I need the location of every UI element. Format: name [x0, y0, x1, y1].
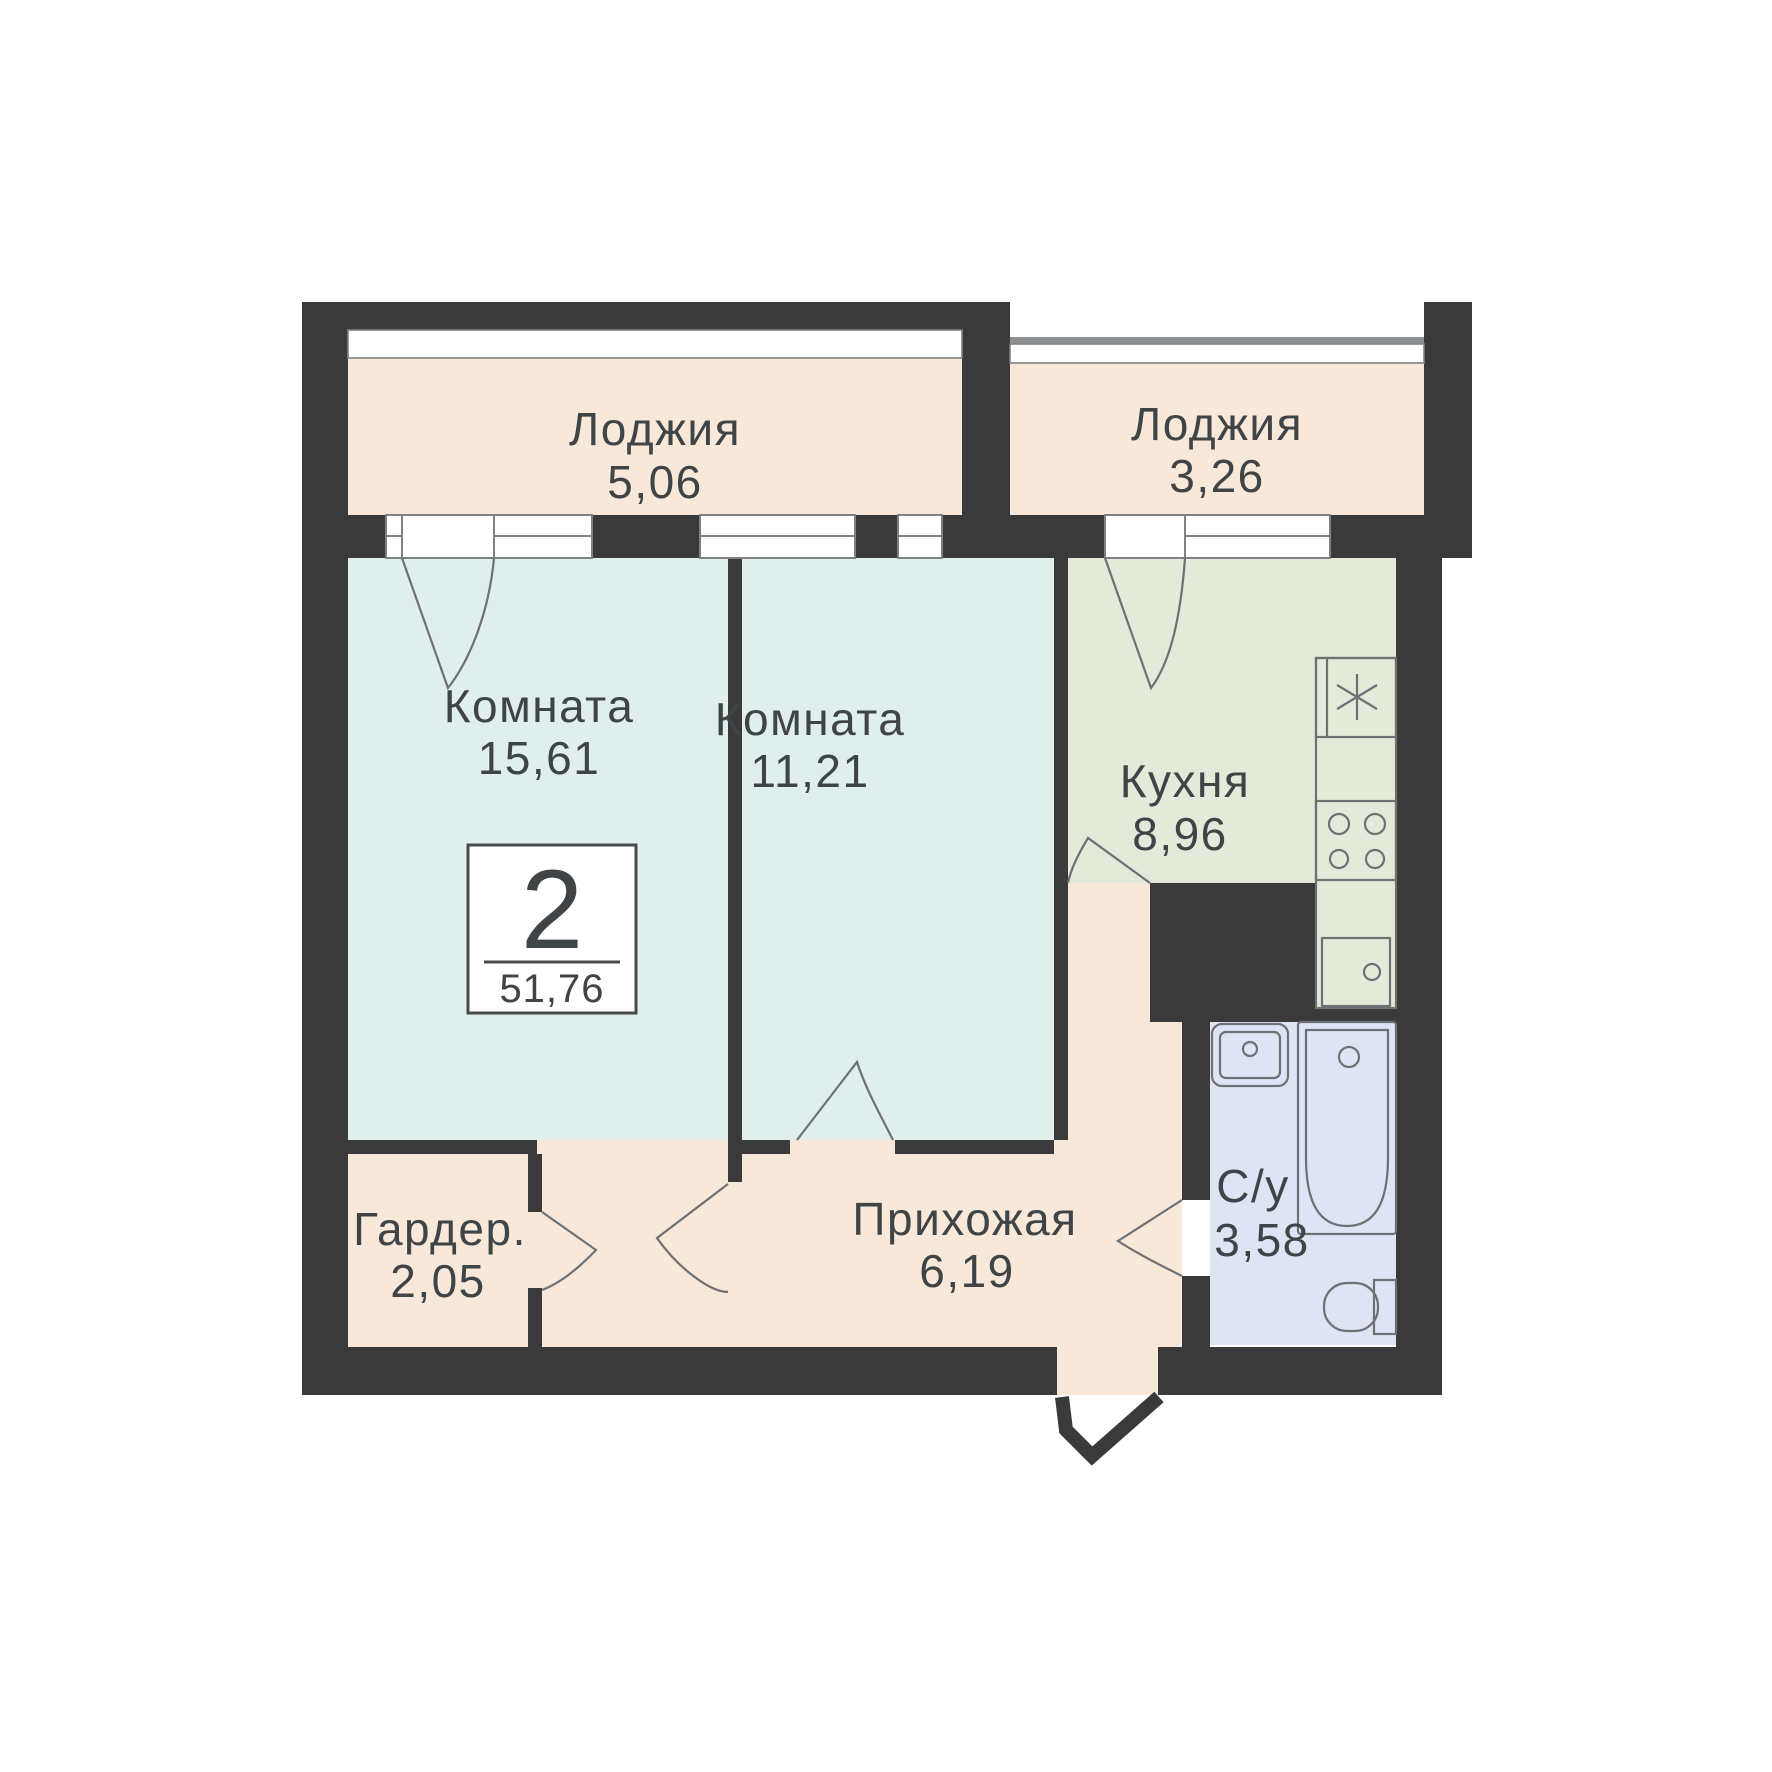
hall-arm-upper-floor — [1068, 883, 1150, 1022]
wall-bottom-left — [302, 1347, 1057, 1395]
loggia2-label: Лоджия — [1131, 398, 1303, 450]
hall-arm-lower-floor — [1068, 1022, 1182, 1140]
entrance-floor — [1057, 1347, 1158, 1395]
wall-right — [1396, 558, 1442, 1395]
balcony-door-kitchen-opening — [1105, 515, 1185, 558]
wall-bath-top — [1316, 1008, 1396, 1022]
wall-wardrobe-right-upper — [528, 1154, 542, 1212]
balcony-door1-opening — [402, 515, 494, 558]
room2-label: Комната — [715, 693, 906, 745]
floor-plan: 2 51,76 Лоджия 5,06 Лоджия 3,26 Комната … — [0, 0, 1772, 1772]
loggia1-area: 5,06 — [607, 456, 703, 508]
wall-kitchen-bath-chunk — [1150, 883, 1316, 1022]
wall-bath-left-upper — [1182, 1022, 1210, 1200]
room2-floor — [742, 558, 1054, 1140]
wall-room2-kitchen — [1054, 558, 1068, 1140]
wall-room2-bottom-right — [895, 1140, 1054, 1154]
room1-area: 15,61 — [478, 732, 601, 784]
total-area: 51,76 — [499, 967, 604, 1011]
bathroom-label: С/у — [1216, 1160, 1290, 1212]
wall-divider-stub — [728, 1140, 742, 1182]
room1-label: Комната — [444, 680, 635, 732]
hall-area: 6,19 — [919, 1245, 1015, 1297]
kitchen-label: Кухня — [1120, 755, 1251, 807]
loggia2-area: 3,26 — [1169, 450, 1265, 502]
wall-bath-left-lower — [1182, 1276, 1210, 1347]
loggia1-glazing-icon — [348, 330, 962, 358]
kitchen-area: 8,96 — [1132, 808, 1228, 860]
loggia2-glazing-icon — [1010, 344, 1424, 363]
wall-room2-bottom-left — [742, 1140, 790, 1154]
floor-plan-page: 2 51,76 Лоджия 5,06 Лоджия 3,26 Комната … — [0, 0, 1772, 1772]
hall-label: Прихожая — [852, 1193, 1077, 1245]
wardrobe-area: 2,05 — [390, 1255, 486, 1307]
kitchen-counter-floor — [1316, 883, 1396, 1008]
entrance-door-icon — [1062, 1397, 1159, 1456]
wall-wardrobe-right-lower — [528, 1288, 542, 1347]
wardrobe-label: Гардер. — [353, 1203, 527, 1255]
loggia1-label: Лоджия — [569, 403, 741, 455]
wall-bottom-right — [1158, 1347, 1442, 1395]
room2-area: 11,21 — [750, 745, 869, 797]
apartment-info-box: 2 51,76 — [468, 845, 636, 1013]
wall-left — [302, 302, 348, 1395]
wall-room1-bottom — [348, 1140, 537, 1154]
bathroom-area: 3,58 — [1214, 1214, 1310, 1266]
wall-top-right-block — [1424, 302, 1472, 558]
loggia-glazing — [348, 330, 1424, 363]
rooms-count: 2 — [521, 847, 583, 972]
loggia2-parapet-icon — [1010, 337, 1424, 344]
kitchen-floor — [1068, 558, 1396, 883]
wall-top-loggia1 — [302, 302, 1010, 330]
wall-room-divider — [728, 558, 742, 1140]
